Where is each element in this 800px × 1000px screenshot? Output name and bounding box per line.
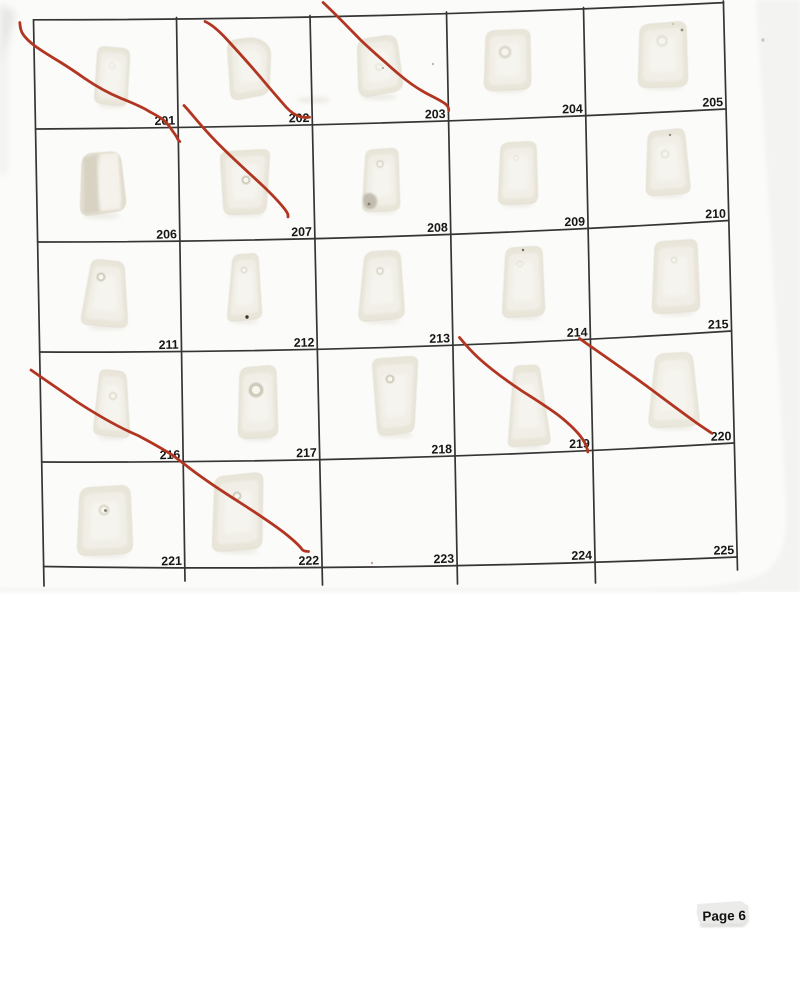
svg-text:207: 207 <box>291 225 312 240</box>
svg-text:206: 206 <box>156 227 177 242</box>
svg-text:Page 6: Page 6 <box>702 908 746 924</box>
svg-text:213: 213 <box>429 331 450 346</box>
svg-text:203: 203 <box>425 107 446 122</box>
svg-text:211: 211 <box>158 338 178 353</box>
svg-text:210: 210 <box>705 207 726 222</box>
svg-text:212: 212 <box>294 335 315 350</box>
svg-text:221: 221 <box>161 554 182 569</box>
svg-text:215: 215 <box>708 317 729 332</box>
svg-text:218: 218 <box>431 442 452 457</box>
svg-text:208: 208 <box>427 221 448 236</box>
svg-text:224: 224 <box>571 548 592 563</box>
svg-text:220: 220 <box>711 429 732 444</box>
svg-text:223: 223 <box>433 552 454 567</box>
svg-text:225: 225 <box>713 543 734 558</box>
svg-text:214: 214 <box>567 325 588 340</box>
svg-text:205: 205 <box>702 95 723 110</box>
svg-text:222: 222 <box>298 554 319 569</box>
svg-text:209: 209 <box>564 215 585 230</box>
svg-text:217: 217 <box>296 446 317 461</box>
svg-text:204: 204 <box>562 102 583 117</box>
